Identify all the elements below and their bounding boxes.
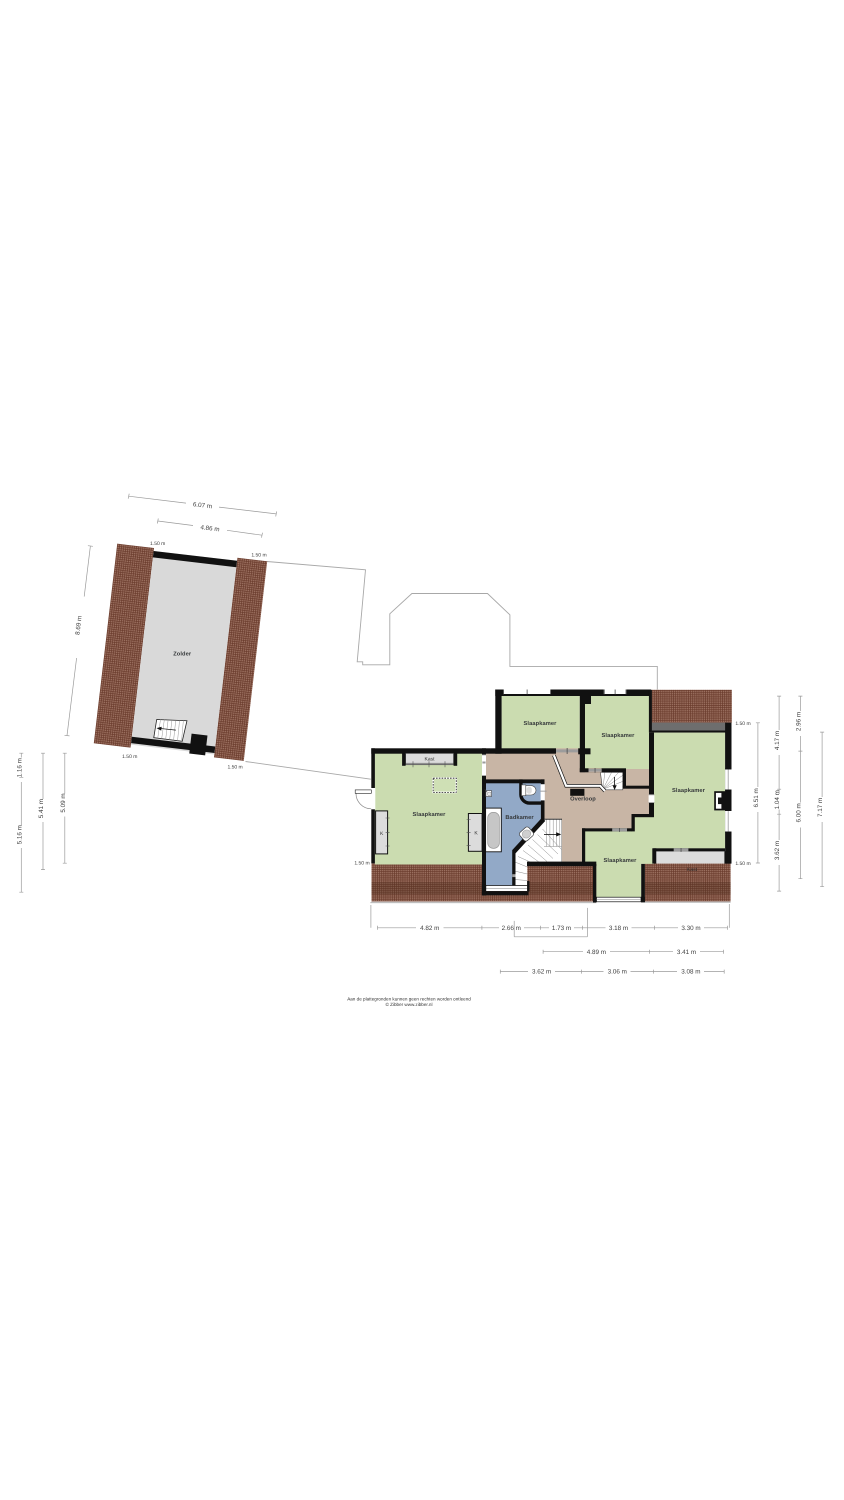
svg-text:3.08 m: 3.08 m — [681, 969, 700, 976]
svg-text:3.62 m: 3.62 m — [532, 969, 551, 976]
svg-text:1.50 m: 1.50 m — [227, 764, 242, 770]
svg-text:2.96 m: 2.96 m — [795, 712, 802, 731]
svg-text:1.73 m: 1.73 m — [552, 925, 571, 932]
svg-text:2.66 m: 2.66 m — [502, 925, 521, 932]
svg-text:Slaapkamer: Slaapkamer — [524, 720, 558, 727]
svg-text:6.00 m: 6.00 m — [795, 803, 802, 822]
svg-text:© Zibber www.zibber.nl: © Zibber www.zibber.nl — [385, 1002, 432, 1007]
svg-text:Slaapkamer: Slaapkamer — [413, 811, 447, 818]
svg-text:Kast: Kast — [687, 867, 698, 873]
svg-text:8.69 m: 8.69 m — [74, 615, 83, 635]
svg-text:3.06 m: 3.06 m — [608, 969, 627, 976]
svg-text:4.17 m: 4.17 m — [774, 731, 781, 750]
svg-text:Slaapkamer: Slaapkamer — [602, 732, 636, 739]
svg-text:1.16 m: 1.16 m — [16, 758, 23, 777]
svg-text:Slaapkamer: Slaapkamer — [604, 857, 638, 864]
svg-text:7.17 m: 7.17 m — [817, 798, 824, 817]
svg-text:5.16 m: 5.16 m — [16, 825, 23, 844]
svg-text:4.82 m: 4.82 m — [420, 925, 439, 932]
svg-text:3.18 m: 3.18 m — [609, 925, 628, 932]
svg-text:4.86 m: 4.86 m — [200, 524, 220, 533]
svg-text:Zolder: Zolder — [173, 650, 192, 657]
svg-text:Slaapkamer: Slaapkamer — [672, 787, 706, 794]
svg-text:6.07 m: 6.07 m — [192, 501, 212, 510]
svg-text:1.50 m: 1.50 m — [150, 541, 165, 547]
svg-text:1.50 m: 1.50 m — [735, 721, 750, 727]
svg-text:4.89 m: 4.89 m — [587, 949, 606, 956]
svg-text:6.51 m: 6.51 m — [753, 788, 760, 807]
svg-text:3.30 m: 3.30 m — [681, 925, 700, 932]
svg-text:Badkamer: Badkamer — [505, 814, 534, 821]
svg-text:Overloop: Overloop — [570, 796, 596, 803]
svg-text:1.50 m: 1.50 m — [735, 861, 750, 867]
svg-text:1.04 m: 1.04 m — [774, 790, 781, 809]
svg-text:1.50 m: 1.50 m — [251, 553, 266, 559]
svg-text:1.50 m: 1.50 m — [354, 861, 369, 867]
svg-text:1.50 m: 1.50 m — [122, 754, 137, 760]
svg-text:3.41 m: 3.41 m — [677, 949, 696, 956]
svg-text:Kast: Kast — [424, 757, 435, 763]
svg-text:Aan de plattegronden kunnen ge: Aan de plattegronden kunnen geen rechten… — [347, 996, 471, 1001]
svg-text:5.09 m: 5.09 m — [60, 793, 67, 812]
svg-text:5.41 m: 5.41 m — [38, 799, 45, 818]
svg-text:3.62 m: 3.62 m — [774, 841, 781, 860]
